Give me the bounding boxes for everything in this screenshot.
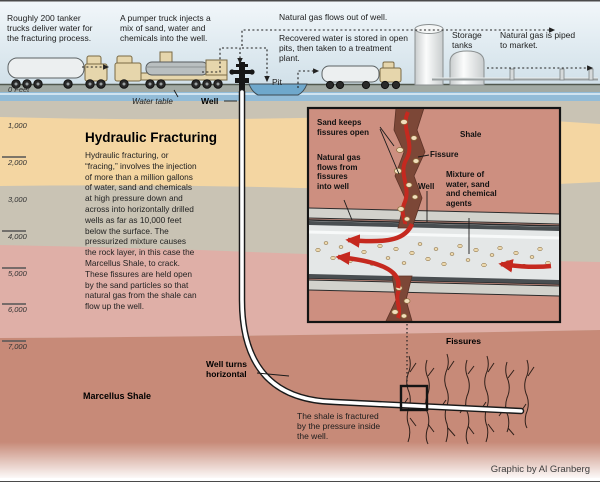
well-surface-label: Well xyxy=(201,96,218,106)
depth-6000: 6,000 xyxy=(8,306,27,314)
body-text: Hydraulic fracturing, or “fracing,” invo… xyxy=(85,150,225,312)
depth-1000: 1,000 xyxy=(8,122,27,130)
depth-2000: 2,000 xyxy=(8,159,27,167)
water-table-label: Water table xyxy=(132,97,173,107)
inset-sand-keeps-label: Sand keeps fissures open xyxy=(317,118,369,137)
depth-4000: 4,000 xyxy=(8,233,27,241)
recovered-note: Recovered water is stored in open pits, … xyxy=(279,33,408,63)
fractured-note: The shale is fractured by the pressure i… xyxy=(297,411,380,441)
inset-diagram xyxy=(308,108,560,322)
storage-tanks-label: Storage tanks xyxy=(452,30,482,50)
infographic-hydraulic-fracturing: Roughly 200 tanker trucks deliver water … xyxy=(0,0,600,487)
depth-7000: 7,000 xyxy=(8,343,27,351)
inset-shale-label: Shale xyxy=(460,130,481,140)
inset-fissure-label: Fissure xyxy=(430,150,458,160)
well-turns-label: Well turns horizontal xyxy=(206,359,247,379)
depth-3000: 3,000 xyxy=(8,196,27,204)
tanker-note: Roughly 200 tanker trucks deliver water … xyxy=(7,13,93,43)
marcellus-shale-label: Marcellus Shale xyxy=(83,391,151,401)
inset-gas-flows-label: Natural gas flows from fissures into wel… xyxy=(317,153,361,191)
depth-5000: 5,000 xyxy=(8,270,27,278)
page-title: Hydraulic Fracturing xyxy=(85,130,217,145)
pit-label: Pit xyxy=(272,77,282,87)
inset-mixture-label: Mixture of water, sand and chemical agen… xyxy=(446,170,497,208)
fissures-label: Fissures xyxy=(446,336,481,346)
piped-note: Natural gas is piped to market. xyxy=(500,30,575,50)
depth-0: 0 Feet xyxy=(8,86,29,94)
gas-out-note: Natural gas flows out of well. xyxy=(279,12,387,22)
credit-line: Graphic by Al Granberg xyxy=(390,464,590,475)
pumper-note: A pumper truck injects a mix of sand, wa… xyxy=(120,13,211,43)
inset-well-label: Well xyxy=(418,182,434,192)
bottom-margin xyxy=(0,478,600,487)
